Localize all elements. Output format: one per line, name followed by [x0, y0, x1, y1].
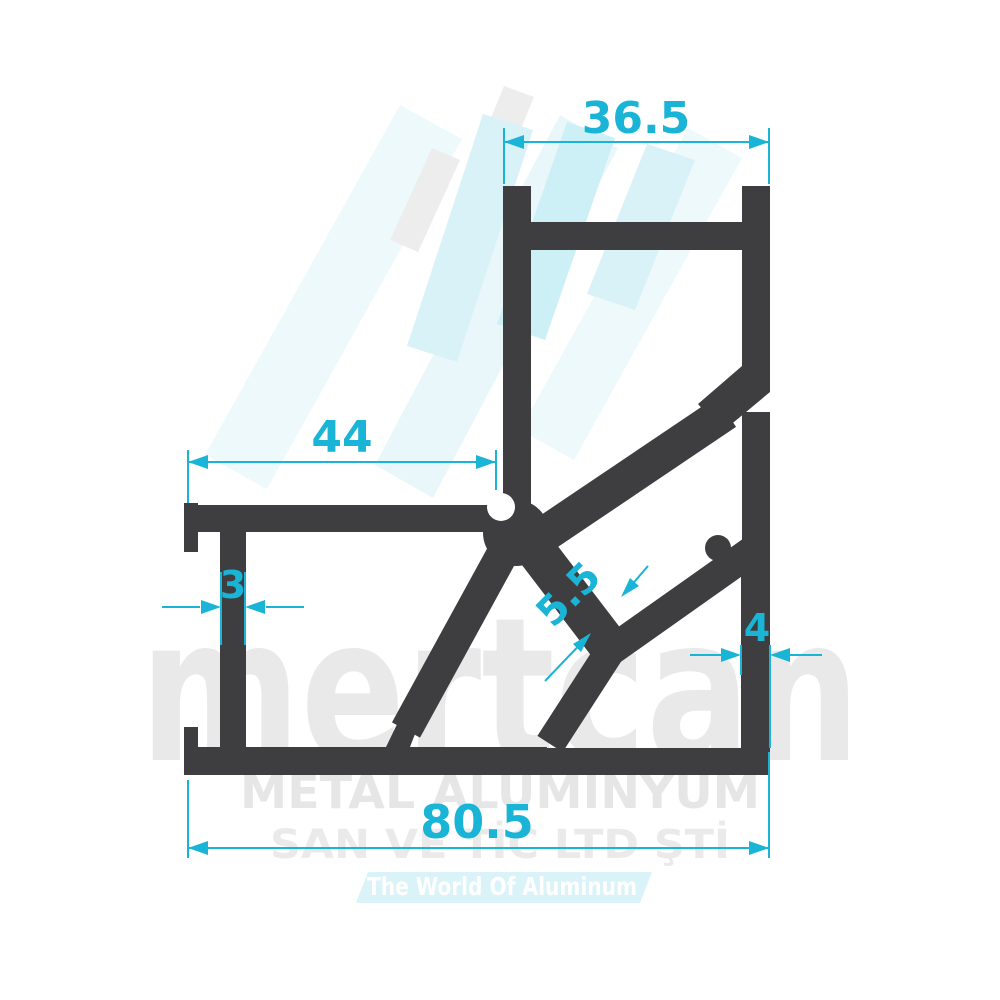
- left-channel-bottom-lip: [184, 727, 198, 775]
- drawing-canvas: mertcan METAL ALÜMİNYUM SAN VE TİC LTD Ş…: [0, 0, 1000, 1000]
- top-channel-web: [503, 222, 770, 250]
- dim-4-label: 4: [744, 606, 770, 650]
- bottom-bar-left: [187, 747, 547, 775]
- dim-36-5-label: 36.5: [582, 93, 691, 144]
- left-channel-web: [220, 520, 246, 752]
- dim-44-label: 44: [311, 412, 372, 463]
- watermark-tagline-text: The World Of Aluminum: [367, 872, 637, 901]
- left-channel-top-lip: [184, 503, 198, 552]
- top-channel-right-wall: [742, 186, 770, 392]
- profile-technical-drawing: mertcan METAL ALÜMİNYUM SAN VE TİC LTD Ş…: [0, 0, 1000, 1000]
- dim-3-label: 3: [220, 563, 246, 607]
- dim-80-5-label: 80.5: [420, 795, 534, 849]
- hub-round-notch: [487, 493, 515, 521]
- right-wall-lower: [741, 556, 770, 775]
